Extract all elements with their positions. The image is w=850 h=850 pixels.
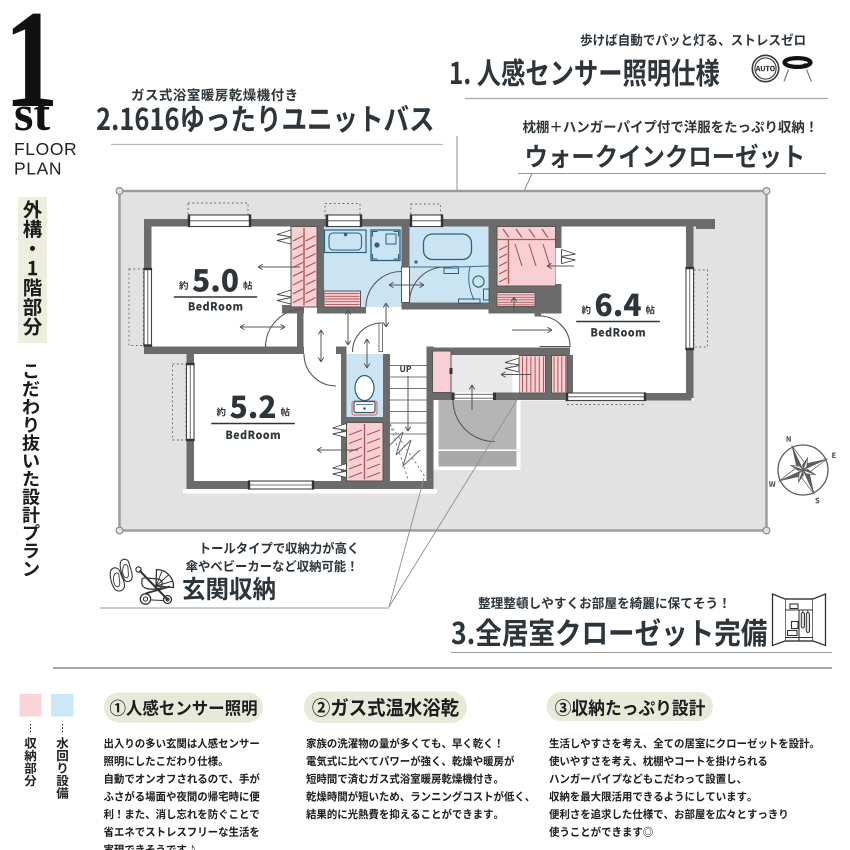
svg-text:st: st	[14, 85, 50, 141]
svg-text:FLOOR: FLOOR	[14, 139, 77, 159]
svg-text:PLAN: PLAN	[14, 159, 62, 179]
